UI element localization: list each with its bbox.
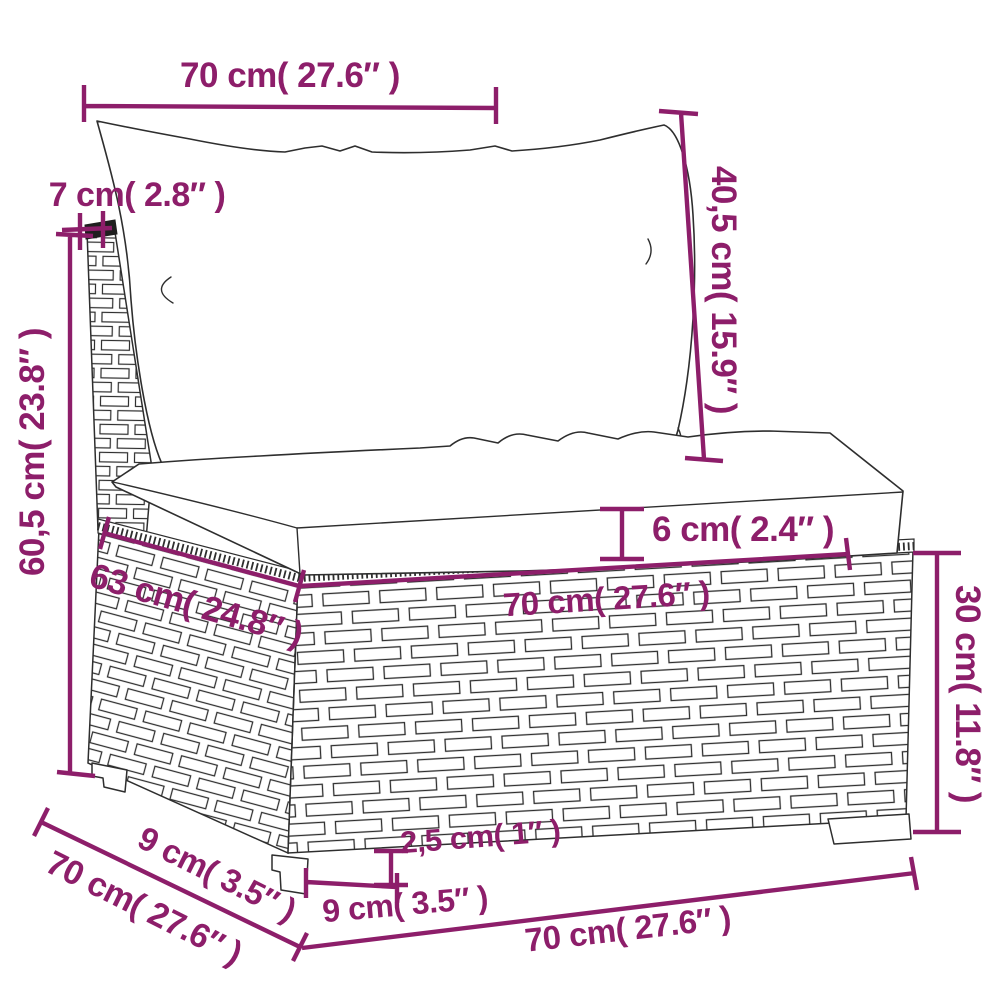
dim-top-width: 70 cm( 27.6″ ) — [84, 56, 496, 124]
dim-overall-height-line — [56, 234, 95, 776]
sofa-sketch — [85, 121, 914, 894]
dim-base-height: 30 cm( 11.8″ ) — [913, 553, 987, 832]
dim-base-height-label: 30 cm( 11.8″ ) — [948, 585, 987, 803]
dim-top-width-label: 70 cm( 27.6″ ) — [180, 56, 400, 95]
dim-seat-cushion-thickness-label: 6 cm( 2.4″ ) — [652, 510, 834, 549]
dim-overall-height: 60,5 cm( 23.8″ ) — [13, 234, 95, 776]
dim-foot-front-inset-label: 9 cm( 3.5″ ) — [321, 879, 489, 929]
back-cushion — [97, 121, 695, 468]
dim-foot-front-inset: 9 cm( 3.5″ ) — [306, 868, 489, 929]
dim-back-panel-thickness-label: 7 cm( 2.8″ ) — [49, 176, 226, 214]
foot-front-right — [828, 814, 911, 844]
dim-overall-height-label: 60,5 cm( 23.8″ ) — [13, 328, 52, 576]
diagram-canvas: 70 cm( 27.6″ ) 7 cm( 2.8″ ) 40,5 cm( 15.… — [0, 0, 1000, 1000]
dim-back-cushion-height-label: 40,5 cm( 15.9″ ) — [704, 166, 743, 414]
